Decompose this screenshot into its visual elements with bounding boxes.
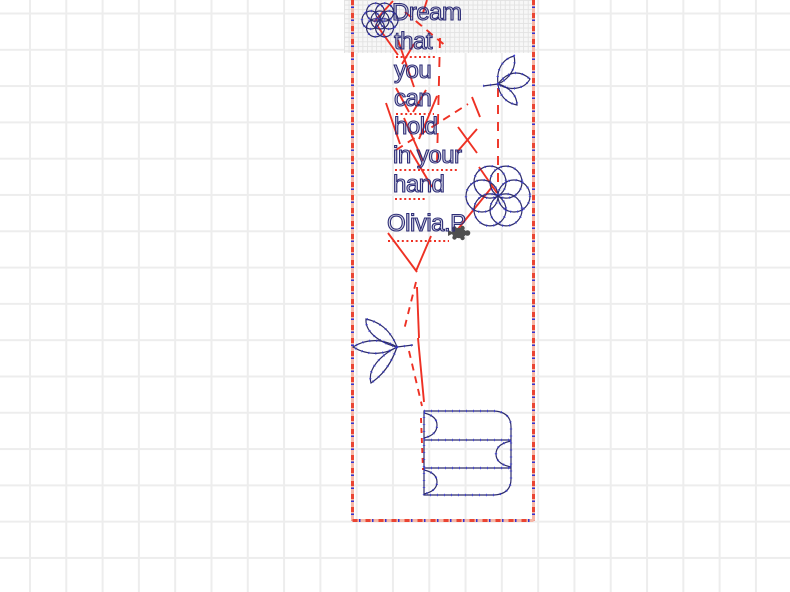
stitched-text-line: hand — [393, 173, 444, 197]
stitched-text-line: Dream — [392, 1, 462, 25]
stitched-text-line: you — [394, 59, 431, 83]
embroidery-canvas[interactable]: Dream that you can hold in your hand Oli… — [0, 0, 790, 592]
stitched-text-line: in your — [393, 144, 462, 168]
stitched-text-line: can — [394, 87, 431, 111]
book-stack-shape — [424, 411, 511, 495]
stitched-text-line: hold — [394, 115, 437, 139]
leaf-flower-top-right — [483, 56, 530, 105]
stitched-signature: Olivia.P — [387, 212, 466, 236]
stitched-text-line: that — [394, 30, 432, 54]
leaf-flower-bottom-left — [353, 319, 413, 383]
